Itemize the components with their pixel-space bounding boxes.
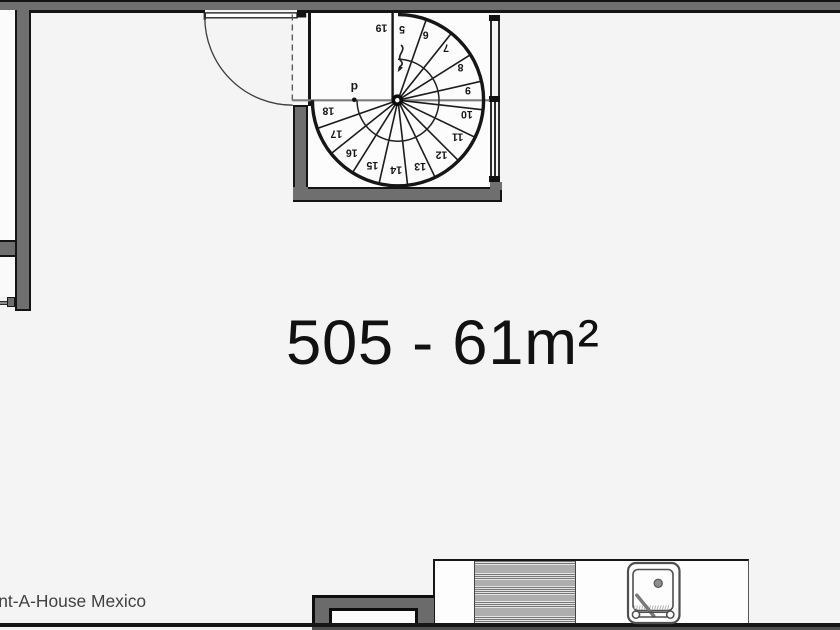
svg-text:17: 17 — [330, 128, 342, 140]
svg-text:14: 14 — [390, 164, 402, 176]
svg-text:12: 12 — [436, 149, 448, 161]
svg-text:6: 6 — [423, 28, 429, 40]
svg-text:11: 11 — [452, 131, 463, 143]
svg-text:10: 10 — [461, 108, 473, 120]
svg-text:7: 7 — [443, 42, 449, 54]
svg-text:13: 13 — [414, 160, 426, 172]
svg-text:9: 9 — [465, 84, 471, 96]
svg-text:8: 8 — [458, 61, 464, 73]
svg-text:19: 19 — [376, 22, 388, 34]
svg-text:15: 15 — [366, 159, 378, 171]
svg-text:d: d — [351, 80, 358, 94]
svg-text:5: 5 — [399, 23, 405, 35]
svg-text:18: 18 — [322, 105, 334, 117]
svg-text:16: 16 — [346, 146, 358, 158]
